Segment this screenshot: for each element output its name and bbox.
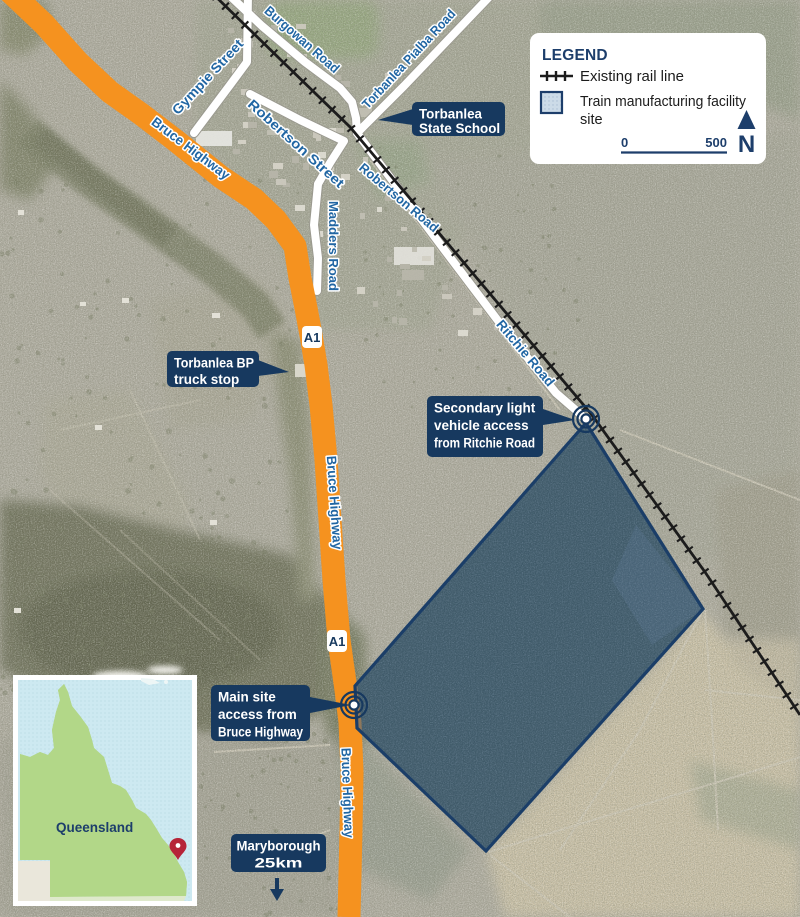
- svg-text:from Ritchie Road: from Ritchie Road: [434, 436, 535, 451]
- svg-text:Train manufacturing facility: Train manufacturing facility: [580, 94, 747, 110]
- svg-text:A1: A1: [329, 634, 346, 649]
- svg-text:Queensland: Queensland: [56, 820, 133, 835]
- svg-text:site: site: [580, 112, 603, 128]
- svg-text:25km: 25km: [255, 856, 303, 871]
- svg-text:500: 500: [705, 135, 727, 150]
- svg-text:truck stop: truck stop: [174, 372, 239, 387]
- svg-text:Bruce Highway: Bruce Highway: [338, 748, 356, 839]
- svg-text:access from: access from: [218, 707, 297, 722]
- svg-text:Torbanlea BP: Torbanlea BP: [174, 356, 254, 371]
- svg-text:Maryborough: Maryborough: [237, 839, 321, 854]
- svg-text:Secondary light: Secondary light: [434, 401, 536, 416]
- svg-text:vehicle access: vehicle access: [434, 418, 529, 433]
- svg-text:State School: State School: [419, 121, 500, 136]
- svg-text:A1: A1: [304, 330, 321, 345]
- svg-text:0: 0: [621, 135, 628, 150]
- svg-text:Main site: Main site: [218, 690, 276, 705]
- svg-text:Existing rail line: Existing rail line: [580, 69, 684, 85]
- svg-text:LEGEND: LEGEND: [542, 47, 608, 64]
- svg-text:N: N: [738, 131, 755, 158]
- svg-text:Torbanlea: Torbanlea: [419, 107, 483, 122]
- svg-text:Madders Road: Madders Road: [326, 201, 341, 291]
- svg-text:Bruce Highway: Bruce Highway: [218, 725, 303, 740]
